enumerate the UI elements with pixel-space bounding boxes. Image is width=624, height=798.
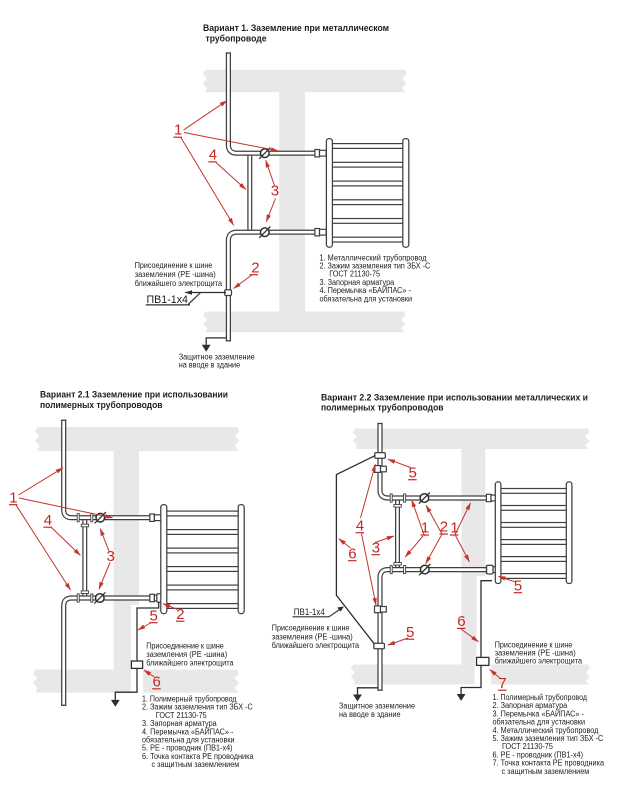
svg-text:5: 5 [514, 577, 522, 594]
svg-text:3: 3 [107, 548, 115, 565]
svg-text:с защитным заземлением: с защитным заземлением [152, 760, 240, 769]
svg-text:6: 6 [457, 613, 465, 630]
svg-text:Вариант 2.2 Заземление при исп: Вариант 2.2 Заземление при использовании… [321, 392, 588, 402]
svg-text:с защитным заземлением: с защитным заземлением [502, 767, 590, 776]
svg-text:4: 4 [44, 512, 52, 529]
svg-text:трубопроводе: трубопроводе [206, 33, 267, 43]
svg-text:1: 1 [174, 122, 182, 139]
svg-text:5: 5 [150, 607, 158, 624]
svg-text:полимерных трубопроводов: полимерных трубопроводов [40, 400, 163, 410]
svg-text:Вариант 2.1 Заземление при исп: Вариант 2.1 Заземление при использовании [40, 390, 228, 400]
svg-text:на вводе в здание: на вводе в здание [339, 710, 401, 719]
svg-text:заземления (РЕ -шина): заземления (РЕ -шина) [135, 270, 216, 279]
svg-text:2: 2 [251, 259, 259, 276]
svg-text:Вариант 1. Заземление при мета: Вариант 1. Заземление при металлическом [203, 23, 389, 33]
svg-text:полимерных трубопроводов: полимерных трубопроводов [321, 403, 444, 413]
svg-text:4: 4 [209, 147, 217, 164]
svg-text:4: 4 [356, 517, 364, 534]
svg-text:ближайшего электрощита: ближайшего электрощита [272, 641, 360, 650]
svg-text:Присоединение к шине: Присоединение к шине [135, 261, 213, 270]
svg-text:ПВ1-1x4: ПВ1-1x4 [294, 607, 325, 617]
svg-text:1: 1 [450, 520, 458, 537]
svg-text:на вводе в здание: на вводе в здание [179, 361, 241, 370]
svg-text:ближайшего электрощита: ближайшего электрощита [135, 279, 223, 288]
svg-text:3: 3 [271, 183, 279, 200]
svg-text:1: 1 [9, 489, 17, 506]
svg-text:ближайшего электрощита: ближайшего электрощита [146, 658, 234, 667]
svg-text:обязательна для установки: обязательна для установки [320, 294, 413, 303]
svg-text:ближайшего электрощита: ближайшего электрощита [495, 657, 583, 666]
svg-text:ПВ1-1x4: ПВ1-1x4 [147, 294, 189, 306]
svg-text:2: 2 [176, 606, 184, 623]
